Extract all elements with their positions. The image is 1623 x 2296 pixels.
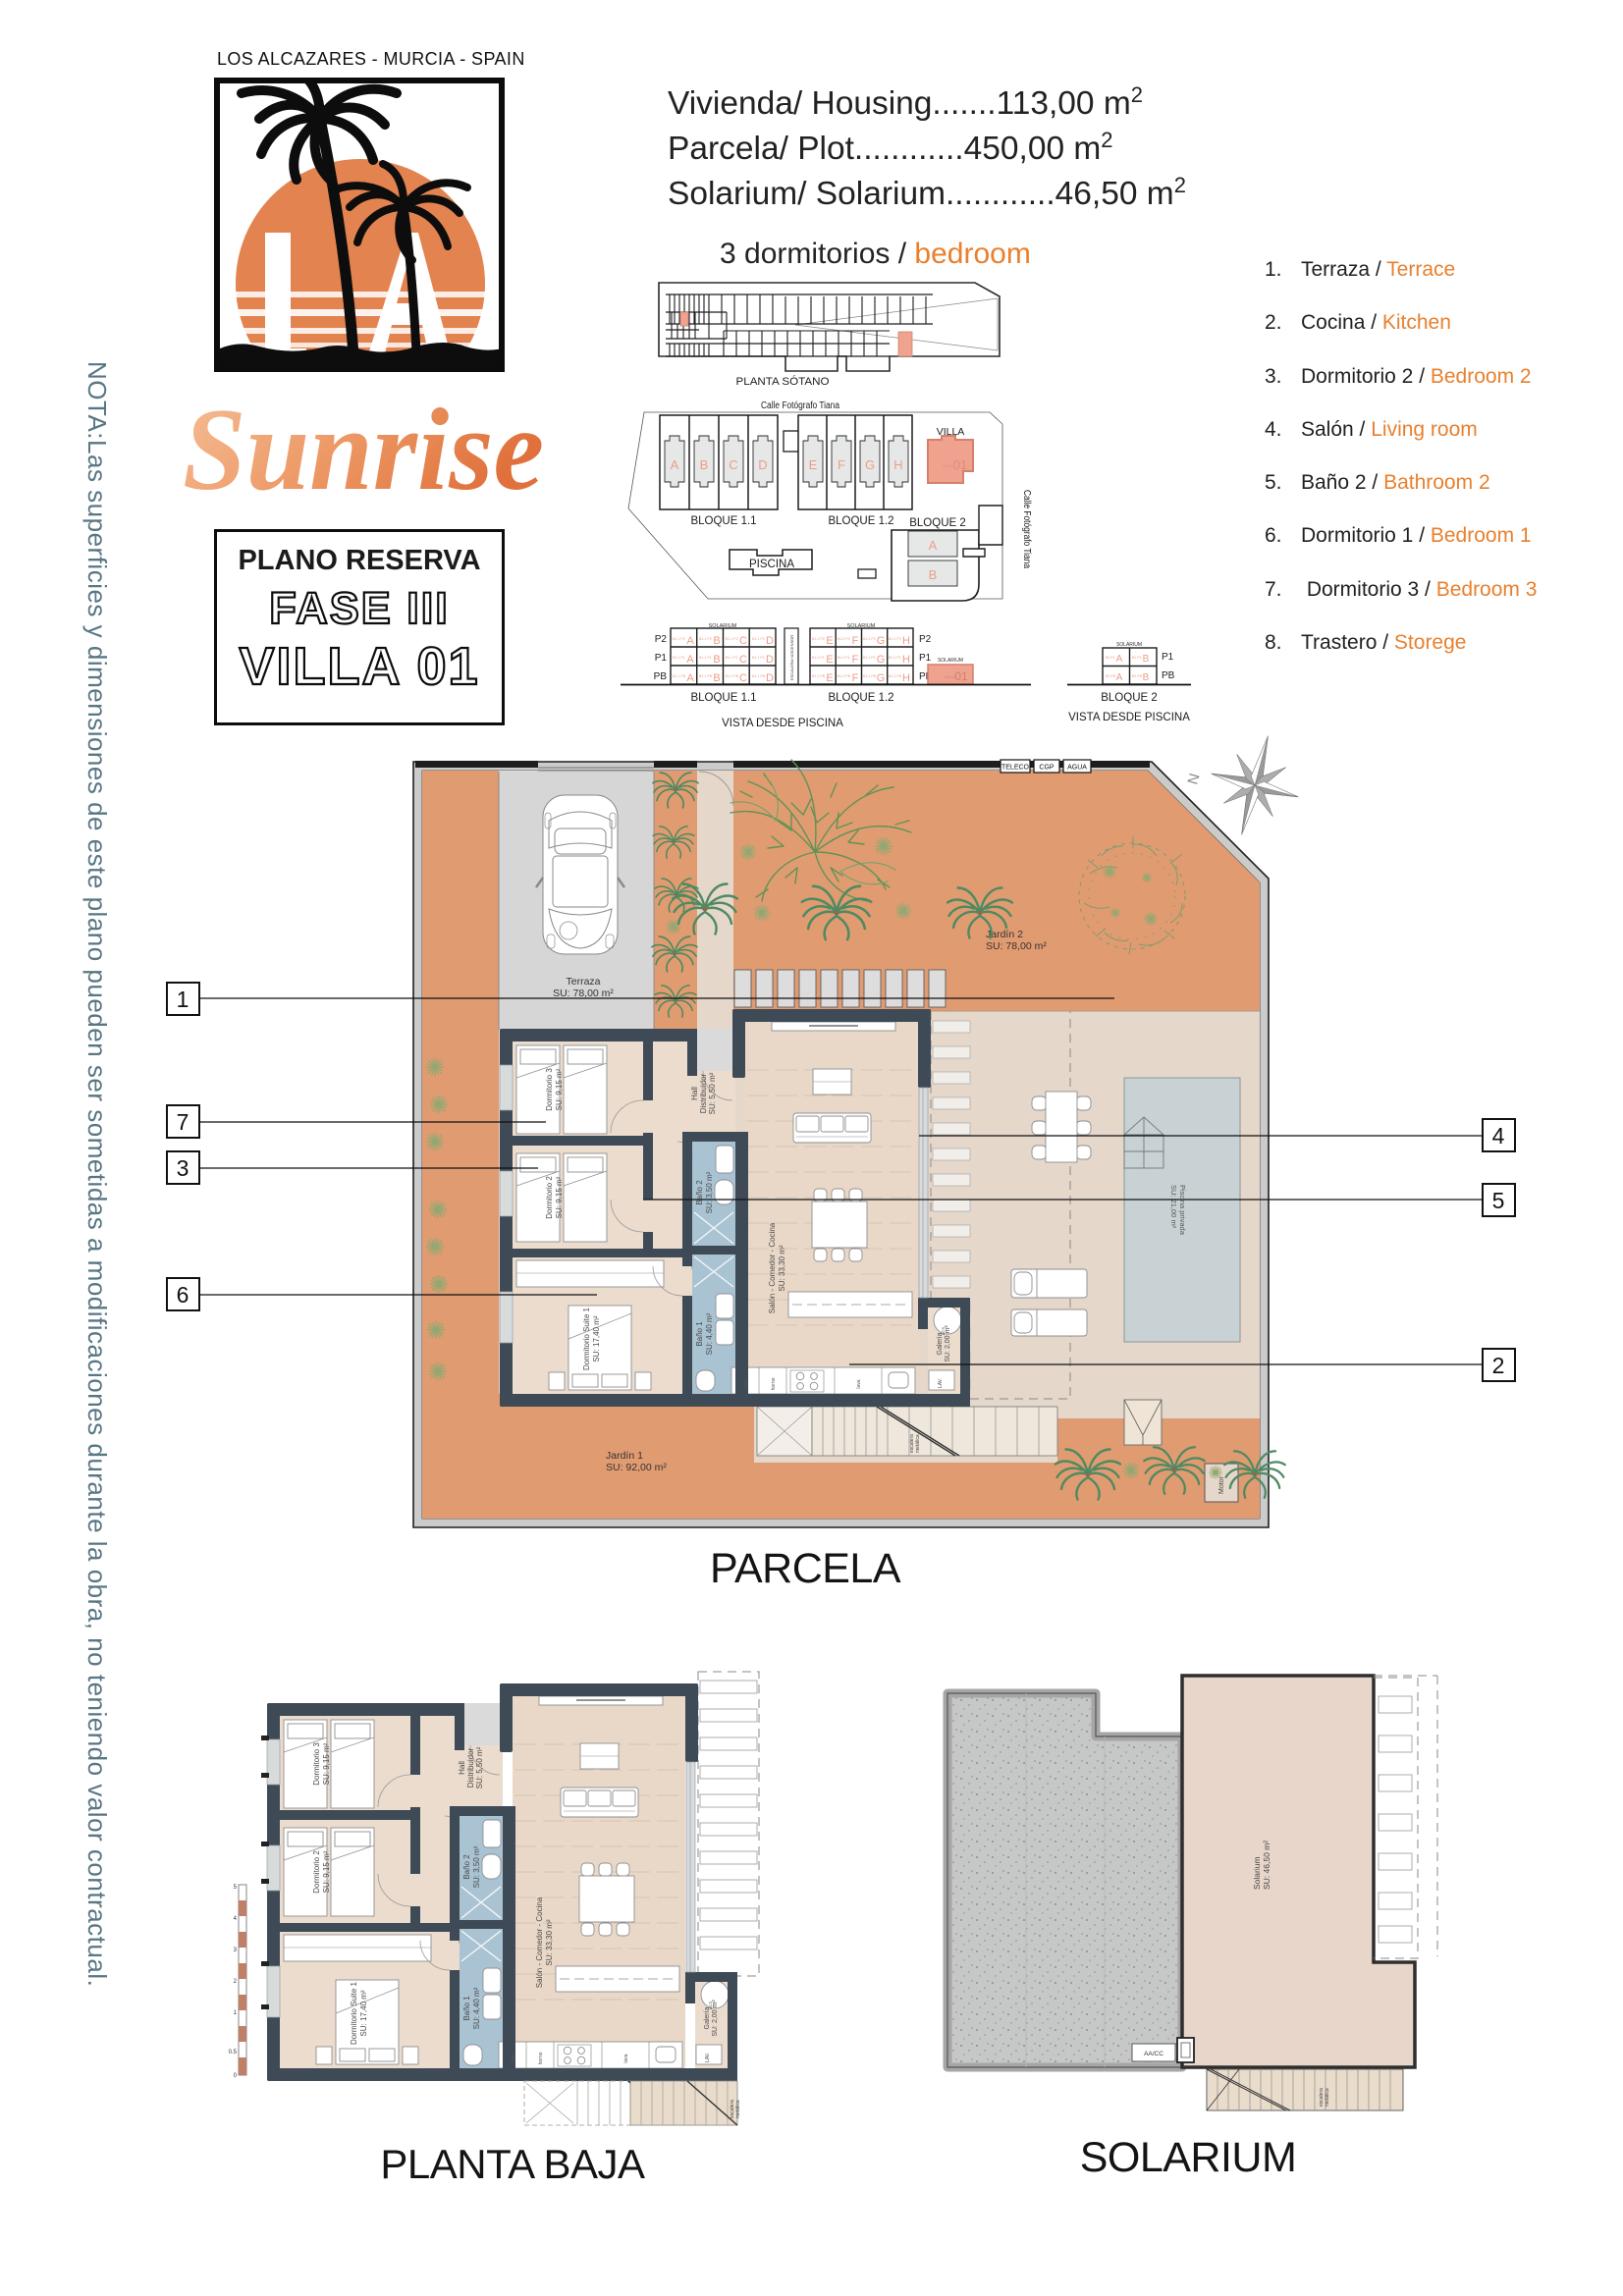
svg-text:01: 01 bbox=[953, 457, 967, 472]
svg-text:F: F bbox=[838, 457, 845, 472]
svg-text:SU: 78,00 m²: SU: 78,00 m² bbox=[986, 940, 1047, 952]
svg-text:ESCALERA+ASCENSOR: ESCALERA+ASCENSOR bbox=[789, 635, 794, 680]
svg-text:escalerametálica: escalerametálica bbox=[909, 1434, 921, 1453]
svg-text:C: C bbox=[739, 672, 747, 684]
svg-text:B: B bbox=[1143, 654, 1150, 665]
svg-text:1: 1 bbox=[177, 987, 189, 1012]
svg-text:4: 4 bbox=[1492, 1123, 1505, 1148]
svg-text:B1.2 PB: B1.2 PB bbox=[863, 674, 877, 678]
svg-text:escalerametálica: escalerametálica bbox=[1319, 2088, 1330, 2107]
svg-text:B1.2 P1: B1.2 P1 bbox=[889, 656, 901, 660]
svg-text:C: C bbox=[729, 457, 737, 472]
svg-text:Motor: Motor bbox=[1218, 1475, 1225, 1494]
svg-text:0.5: 0.5 bbox=[229, 2050, 238, 2056]
svg-text:3: 3 bbox=[234, 1948, 238, 1953]
svg-text:Calle Fotógrafo Tiana: Calle Fotógrafo Tiana bbox=[1021, 490, 1032, 568]
svg-text:BLOQUE 1.1: BLOQUE 1.1 bbox=[690, 692, 756, 704]
svg-text:Calle Fotógrafo Tiana: Calle Fotógrafo Tiana bbox=[761, 400, 839, 411]
svg-text:TELECO: TELECO bbox=[1001, 765, 1030, 772]
svg-text:PB: PB bbox=[1162, 670, 1175, 681]
svg-text:F: F bbox=[852, 635, 859, 647]
svg-text:B1.1 P2: B1.1 P2 bbox=[726, 637, 738, 641]
svg-text:C: C bbox=[739, 635, 747, 647]
svg-text:C: C bbox=[739, 654, 747, 666]
svg-text:G: G bbox=[865, 457, 875, 472]
svg-text:B: B bbox=[929, 567, 938, 582]
svg-text:H: H bbox=[902, 635, 910, 647]
svg-text:B1.1 PB: B1.1 PB bbox=[699, 674, 713, 678]
svg-text:N: N bbox=[1184, 772, 1203, 786]
svg-text:B2 P1: B2 P1 bbox=[1132, 656, 1142, 660]
svg-text:B2 PB: B2 PB bbox=[1132, 674, 1143, 678]
svg-text:B: B bbox=[1143, 672, 1150, 683]
svg-text:B1.1 PB: B1.1 PB bbox=[673, 674, 686, 678]
svg-text:A: A bbox=[686, 672, 694, 684]
svg-text:BLOQUE 1.2: BLOQUE 1.2 bbox=[828, 692, 893, 704]
svg-text:Jardín 1: Jardín 1 bbox=[606, 1450, 643, 1462]
svg-text:SU: 78,00 m²: SU: 78,00 m² bbox=[553, 988, 614, 999]
svg-text:B1.1 P1: B1.1 P1 bbox=[673, 656, 685, 660]
svg-text:D: D bbox=[758, 457, 767, 472]
svg-text:B1.2 PB: B1.2 PB bbox=[838, 674, 851, 678]
svg-text:P2: P2 bbox=[655, 634, 668, 645]
svg-text:H: H bbox=[893, 457, 902, 472]
svg-text:2: 2 bbox=[1492, 1353, 1505, 1378]
svg-text:B1.1 PB: B1.1 PB bbox=[752, 674, 766, 678]
svg-text:E: E bbox=[826, 635, 833, 647]
svg-text:PLANTA SÓTANO: PLANTA SÓTANO bbox=[736, 375, 830, 388]
svg-text:B1.1 P2: B1.1 P2 bbox=[752, 637, 765, 641]
svg-text:AA/CC: AA/CC bbox=[1144, 2051, 1163, 2057]
svg-text:H: H bbox=[902, 654, 910, 666]
svg-text:VILLA: VILLA bbox=[943, 463, 953, 468]
svg-text:Terraza: Terraza bbox=[566, 976, 600, 988]
svg-text:B1.2 PB: B1.2 PB bbox=[812, 674, 826, 678]
svg-text:P1: P1 bbox=[919, 653, 932, 664]
svg-text:G: G bbox=[877, 654, 886, 666]
svg-text:1: 1 bbox=[234, 2010, 238, 2016]
svg-text:D: D bbox=[766, 672, 774, 684]
svg-text:B1.1 P1: B1.1 P1 bbox=[752, 656, 765, 660]
svg-text:A: A bbox=[1116, 672, 1123, 683]
svg-text:G: G bbox=[877, 635, 886, 647]
svg-text:B1.1 PB: B1.1 PB bbox=[726, 674, 739, 678]
svg-text:E: E bbox=[826, 654, 833, 666]
svg-text:AGUA: AGUA bbox=[1067, 765, 1087, 772]
svg-text:F: F bbox=[852, 672, 859, 684]
svg-text:BLOQUE 1.2: BLOQUE 1.2 bbox=[828, 515, 893, 527]
svg-text:escalerametálica: escalerametálica bbox=[730, 2100, 741, 2118]
svg-text:01: 01 bbox=[954, 669, 968, 683]
svg-text:B2 P1: B2 P1 bbox=[1106, 656, 1115, 660]
svg-text:P2: P2 bbox=[919, 634, 932, 645]
svg-text:5: 5 bbox=[1492, 1188, 1505, 1213]
svg-text:E: E bbox=[826, 672, 833, 684]
svg-text:A: A bbox=[671, 457, 679, 472]
svg-text:4: 4 bbox=[234, 1916, 238, 1922]
svg-text:B1.2 P1: B1.2 P1 bbox=[863, 656, 876, 660]
svg-text:BLOQUE 2: BLOQUE 2 bbox=[1101, 692, 1158, 704]
svg-text:B1.1 P1: B1.1 P1 bbox=[726, 656, 738, 660]
svg-text:A: A bbox=[929, 538, 938, 553]
svg-text:SOLARIUM: SOLARIUM bbox=[938, 658, 963, 664]
svg-text:BLOQUE 1.1: BLOQUE 1.1 bbox=[690, 515, 756, 527]
svg-text:B1.1 P1: B1.1 P1 bbox=[699, 656, 712, 660]
svg-text:A: A bbox=[686, 654, 694, 666]
svg-text:F: F bbox=[852, 654, 859, 666]
svg-text:A: A bbox=[1116, 654, 1123, 665]
svg-text:5: 5 bbox=[234, 1885, 238, 1891]
svg-text:BLOQUE 2: BLOQUE 2 bbox=[909, 517, 966, 529]
svg-text:G: G bbox=[877, 672, 886, 684]
svg-text:3: 3 bbox=[177, 1155, 189, 1181]
svg-text:B1.2 P1: B1.2 P1 bbox=[838, 656, 850, 660]
svg-text:2: 2 bbox=[234, 1979, 238, 1985]
svg-text:6: 6 bbox=[177, 1282, 189, 1308]
svg-text:PISCINA: PISCINA bbox=[749, 559, 794, 570]
svg-text:B1.2 PB: B1.2 PB bbox=[889, 674, 902, 678]
svg-text:B: B bbox=[713, 654, 720, 666]
svg-text:VISTA DESDE PISCINA: VISTA DESDE PISCINA bbox=[1068, 712, 1190, 723]
svg-text:B: B bbox=[700, 457, 709, 472]
svg-text:VISTA DESDE PISCINA: VISTA DESDE PISCINA bbox=[722, 718, 843, 729]
svg-text:0: 0 bbox=[234, 2073, 238, 2079]
svg-text:B2 PB: B2 PB bbox=[1106, 674, 1116, 678]
svg-text:B1.2 P2: B1.2 P2 bbox=[863, 637, 876, 641]
svg-text:B1.2 P2: B1.2 P2 bbox=[889, 637, 901, 641]
svg-text:Piscina privadaSU: 21,00 m²: Piscina privadaSU: 21,00 m² bbox=[1169, 1185, 1187, 1236]
svg-text:B1.2 P1: B1.2 P1 bbox=[812, 656, 825, 660]
svg-text:PB: PB bbox=[654, 671, 668, 682]
svg-text:D: D bbox=[766, 654, 774, 666]
svg-text:CGP: CGP bbox=[1039, 765, 1055, 772]
svg-text:B1.1 P2: B1.1 P2 bbox=[699, 637, 712, 641]
svg-text:A: A bbox=[686, 635, 694, 647]
svg-text:B1.2 P2: B1.2 P2 bbox=[838, 637, 850, 641]
svg-text:7: 7 bbox=[177, 1109, 189, 1135]
svg-text:B1.2 P2: B1.2 P2 bbox=[812, 637, 825, 641]
svg-text:E: E bbox=[809, 457, 818, 472]
svg-text:H: H bbox=[902, 672, 910, 684]
svg-text:P1: P1 bbox=[1162, 652, 1174, 663]
svg-text:B: B bbox=[713, 672, 720, 684]
svg-text:D: D bbox=[766, 635, 774, 647]
svg-text:B: B bbox=[713, 635, 720, 647]
svg-text:B1.1 P2: B1.1 P2 bbox=[673, 637, 685, 641]
svg-text:P1: P1 bbox=[655, 653, 668, 664]
svg-text:SOLARIUM: SOLARIUM bbox=[1116, 642, 1142, 648]
svg-text:SU: 92,00 m²: SU: 92,00 m² bbox=[606, 1462, 667, 1473]
